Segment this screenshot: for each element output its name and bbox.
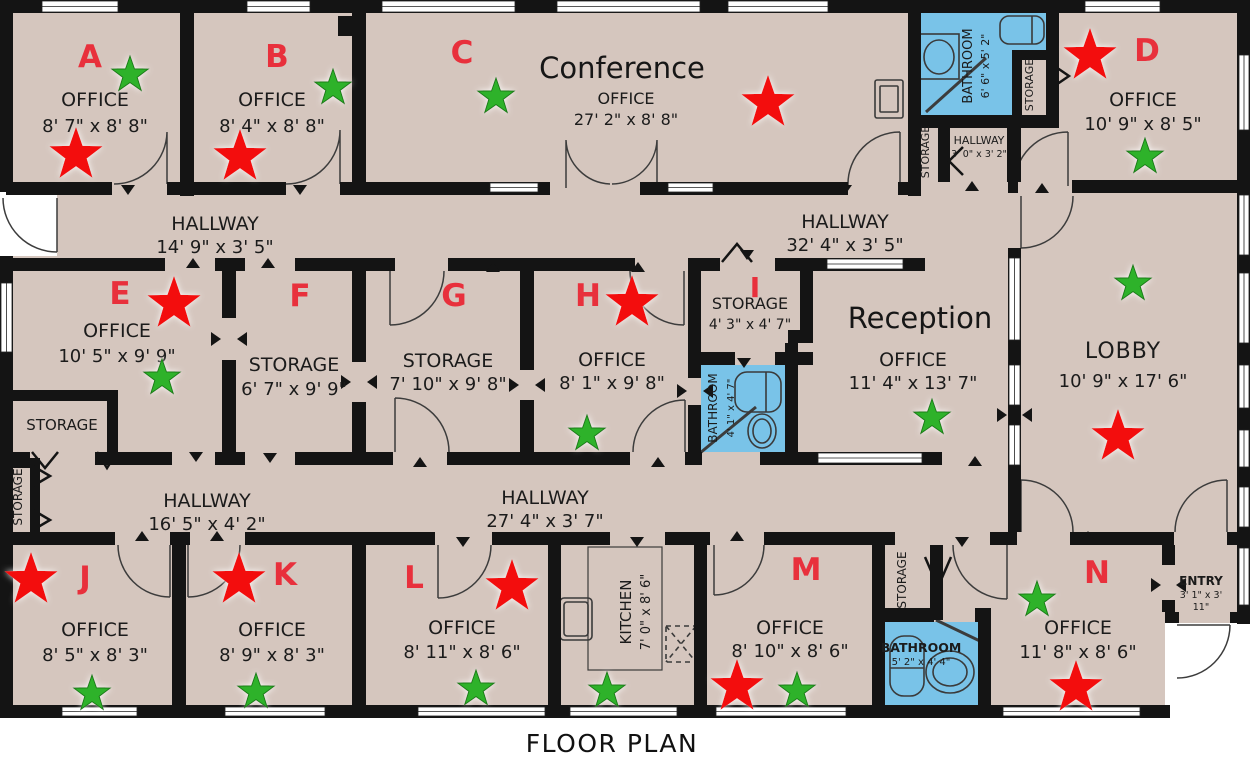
closet-far-left-label: STORAGE <box>11 468 25 525</box>
hallway-bottom-right-name: HALLWAY <box>501 487 589 509</box>
room-d-dims: 10' 9" x 8' 5" <box>1084 114 1201 135</box>
page-title: FLOOR PLAN <box>526 729 698 758</box>
closet-small-hall-label: STORAGE <box>919 126 932 178</box>
room-l-letter: L <box>404 560 424 596</box>
room-m-letter: M <box>791 552 822 588</box>
conference-name: Conference <box>539 51 705 85</box>
room-j-dims: 8' 5" x 8' 3" <box>42 645 148 666</box>
room-f-dims: 6' 7" x 9' 9" <box>241 379 347 400</box>
room-j-type: OFFICE <box>61 619 129 641</box>
hallway-bottom-left-dims: 16' 5" x 4' 2" <box>148 514 265 535</box>
kitchen-dims: 7' 0" x 8' 6" <box>639 574 654 650</box>
lobby-type: LOBBY <box>1085 339 1161 364</box>
room-h-type: OFFICE <box>578 349 646 371</box>
room-a-dims: 8' 7" x 8' 8" <box>42 116 148 137</box>
closet-top-right-label: STORAGE <box>1023 59 1036 111</box>
entry-dims-2: 11" <box>1193 602 1209 613</box>
room-a-type: OFFICE <box>61 89 129 111</box>
lobby-dims: 10' 9" x 17' 6" <box>1059 371 1188 392</box>
room-n-dims: 11' 8" x 8' 6" <box>1019 642 1136 663</box>
bathroom-bottom-name: BATHROOM <box>881 640 962 655</box>
room-k-letter: K <box>273 557 298 593</box>
room-n-type: OFFICE <box>1044 617 1112 639</box>
room-m-dims: 8' 10" x 8' 6" <box>731 641 848 662</box>
reception-name: Reception <box>848 301 992 335</box>
room-l-dims: 8' 11" x 8' 6" <box>403 642 520 663</box>
room-l-type: OFFICE <box>428 617 496 639</box>
room-c-type: OFFICE <box>598 89 655 108</box>
room-e-type: OFFICE <box>83 320 151 342</box>
room-g-letter: G <box>441 278 466 314</box>
room-b-type: OFFICE <box>238 89 306 111</box>
floor-plan-page: A B C D E F G H I J K L M N Conference R… <box>0 0 1250 767</box>
entry-type: ENTRY <box>1179 574 1223 588</box>
room-i-dims: 4' 3" x 4' 7" <box>709 317 791 333</box>
room-c-letter: C <box>451 35 474 71</box>
entry-dims-1: 3' 1" x 3' <box>1180 590 1222 601</box>
room-g-type: STORAGE <box>403 350 493 372</box>
room-h-dims: 8' 1" x 9' 8" <box>559 373 665 394</box>
reception-dims: 11' 4" x 13' 7" <box>849 373 978 394</box>
room-k-type: OFFICE <box>238 619 306 641</box>
room-k-dims: 8' 9" x 8' 3" <box>219 645 325 666</box>
hallway-top-right-name: HALLWAY <box>801 211 889 233</box>
bathroom-top-dims: 6' 6" x 5' 2" <box>979 34 992 99</box>
room-b-letter: B <box>265 39 289 75</box>
room-h-letter: H <box>575 278 601 314</box>
hallway-bottom-left-name: HALLWAY <box>163 490 251 512</box>
room-f-type: STORAGE <box>249 354 339 376</box>
room-j-letter: J <box>77 560 91 596</box>
hallway-top-right-dims: 32' 4" x 3' 5" <box>786 235 903 256</box>
closet-room-e-label: STORAGE <box>26 416 97 434</box>
bathroom-bottom-dims: 5' 2" x 4' 4" <box>892 657 951 668</box>
bathroom-middle-name: BATHROOM <box>706 373 720 442</box>
room-c-dims: 27' 2" x 8' 8" <box>574 110 678 129</box>
room-e-dims: 10' 5" x 9' 9" <box>58 346 175 367</box>
floor-plan-canvas: A B C D E F G H I J K L M N Conference R… <box>0 0 1250 767</box>
closet-bottom-label: STORAGE <box>895 551 909 608</box>
kitchen-type: KITCHEN <box>617 580 635 645</box>
hallway-top-left-dims: 14' 9" x 3' 5" <box>156 237 273 258</box>
hallway-small-name: HALLWAY <box>954 134 1005 147</box>
room-a-letter: A <box>78 39 102 75</box>
room-d-letter: D <box>1134 33 1160 69</box>
room-i-type: STORAGE <box>712 294 788 313</box>
reception-type: OFFICE <box>879 349 947 371</box>
room-e-letter: E <box>109 276 130 312</box>
room-m-type: OFFICE <box>756 617 824 639</box>
room-n-letter: N <box>1084 555 1110 591</box>
room-b-dims: 8' 4" x 8' 8" <box>219 116 325 137</box>
hallway-top-left-name: HALLWAY <box>171 213 259 235</box>
room-g-dims: 7' 10" x 9' 8" <box>389 374 506 395</box>
bathroom-top-name: BATHROOM <box>961 28 976 103</box>
room-d-type: OFFICE <box>1109 89 1177 111</box>
hallway-bottom-right-dims: 27' 4" x 3' 7" <box>486 511 603 532</box>
hallway-small-dims: 3' 0" x 3' 2" <box>951 149 1007 160</box>
bathroom-middle-dims: 4' 1" x 4' 7" <box>726 379 737 438</box>
room-f-letter: F <box>289 278 310 314</box>
